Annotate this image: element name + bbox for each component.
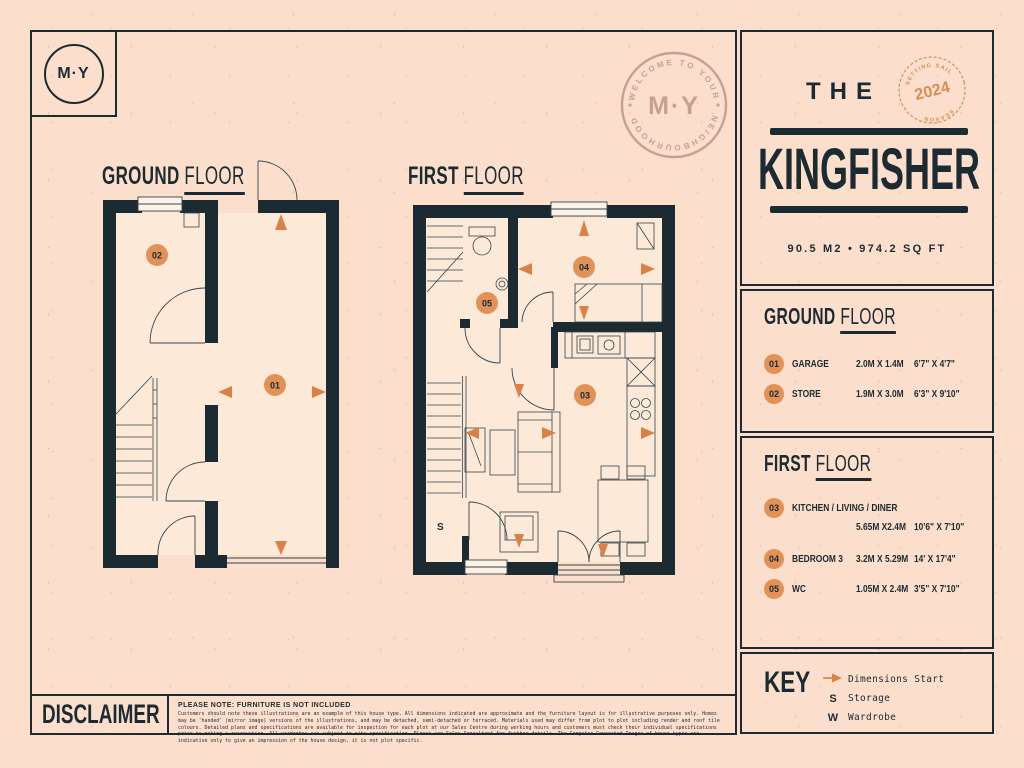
ground-heading-strong: GROUND: [764, 303, 836, 329]
room-row-garage: 01 GARAGE 2.0M X 1.4M 6'7" X 4'7": [764, 349, 978, 379]
house-area: 90.5 M2 • 974.2 SQ FT: [742, 243, 992, 255]
disclaimer-note: PLEASE NOTE: FURNITURE IS NOT INCLUDED: [178, 702, 351, 709]
room-badge-store: 02: [146, 244, 168, 266]
room-metric: 1.9M X 3.0M: [856, 388, 904, 400]
first-label-strong: FIRST: [408, 162, 459, 190]
room-row-kitchen: 03 KITCHEN / LIVING / DINER 5.65M X2.4M …: [764, 498, 978, 536]
svg-text:03: 03: [580, 391, 590, 401]
key-heading: KEY: [764, 666, 810, 700]
first-window-top: [551, 202, 607, 216]
first-label-light: FLOOR: [464, 162, 524, 195]
svg-text:01: 01: [270, 381, 280, 391]
svg-text:05: 05: [482, 299, 492, 309]
room-number-badge: 05: [764, 579, 784, 599]
room-name: BEDROOM 3: [792, 553, 843, 565]
welcome-badge: WELCOME TO YOUR NEIGHBOURHOOD M·Y: [618, 49, 730, 161]
ground-floor-plan: 02 01: [100, 156, 342, 574]
logo-box: M·Y: [30, 30, 117, 117]
welcome-badge-center: M·Y: [648, 92, 700, 120]
first-heading-strong: FIRST: [764, 450, 811, 476]
room-number-badge: 01: [764, 354, 784, 374]
wardrobe-symbol: W: [818, 712, 848, 724]
room-imperial: 14' X 17'4": [914, 553, 956, 565]
first-panel-heading: FIRSTFLOOR: [764, 450, 922, 477]
room-name: WC: [792, 583, 806, 595]
ground-panel-heading: GROUNDFLOOR: [764, 303, 958, 330]
key-label: Wardrobe: [848, 712, 896, 723]
room-badge-wc: 05: [476, 292, 498, 314]
svg-text:04: 04: [579, 263, 589, 273]
room-imperial: 3'5" X 7'10": [914, 583, 960, 595]
ground-floor-panel: GROUNDFLOOR 01 GARAGE 2.0M X 1.4M 6'7" X…: [740, 289, 994, 433]
stamp-year: 2024: [913, 79, 952, 104]
room-row-store: 02 STORE 1.9M X 3.0M 6'3" X 9'10": [764, 379, 978, 409]
ground-heading-light: FLOOR: [840, 303, 896, 334]
title-rule-top: [770, 128, 968, 135]
key-label: Storage: [848, 693, 890, 704]
room-row-bedroom: 04 BEDROOM 3 3.2M X 5.29M 14' X 17'4": [764, 544, 978, 574]
house-name-text: KINGFISHER: [758, 137, 980, 200]
room-imperial: 6'7" X 4'7": [914, 358, 955, 370]
room-imperial: 10'6" X 7'10": [914, 521, 964, 533]
room-metric: 5.65M X2.4M: [856, 521, 906, 533]
room-badge-bedroom: 04: [573, 256, 595, 278]
garage-door: [227, 558, 326, 563]
room-name: STORE: [792, 388, 821, 400]
key-label: Dimensions Start: [848, 674, 944, 685]
room-name: KITCHEN / LIVING / DINER: [792, 502, 897, 514]
ground-window: [138, 197, 182, 211]
first-floor-plan: S 05 04 03: [405, 196, 685, 588]
first-floor-plan-label: FIRSTFLOOR: [408, 162, 578, 191]
disclaimer-panel: DISCLAIMER PLEASE NOTE: FURNITURE IS NOT…: [30, 694, 737, 735]
year-stamp: SETTING SAIL SEASON 2024: [886, 44, 978, 136]
key-panel: KEY Dimensions Start S Storage W Wardrob…: [740, 652, 994, 734]
key-item-dimensions: Dimensions Start: [818, 670, 944, 689]
disclaimer-body: Customers should note these illustration…: [178, 711, 727, 745]
disclaimer-divider: [167, 696, 169, 733]
room-number-badge: 04: [764, 549, 784, 569]
dimensions-start-arrow-icon: [823, 673, 843, 683]
room-imperial: 6'3" X 9'10": [914, 388, 960, 400]
room-name: GARAGE: [792, 358, 829, 370]
floorplan-brochure-page: { "logo": { "text": "M·Y" }, "welcome_ba…: [0, 0, 1024, 768]
brand-logo-text: M·Y: [57, 65, 89, 83]
ground-entrance-door: [258, 161, 297, 200]
disclaimer-heading: DISCLAIMER: [42, 699, 160, 730]
key-item-wardrobe: W Wardrobe: [818, 708, 944, 727]
room-number-badge: 03: [764, 498, 784, 518]
first-window-bottom: [465, 560, 507, 574]
storage-symbol: S: [818, 693, 848, 705]
room-row-wc: 05 WC 1.05M X 2.4M 3'5" X 7'10": [764, 574, 978, 604]
room-metric: 3.2M X 5.29M: [856, 553, 908, 565]
brand-logo: M·Y: [44, 44, 104, 104]
title-panel: THE SETTING SAIL SEASON 2024 KINGFISHER …: [740, 30, 994, 286]
room-metric: 2.0M X 1.4M: [856, 358, 904, 370]
room-badge-kitchen: 03: [574, 384, 596, 406]
svg-text:02: 02: [152, 251, 162, 261]
room-metric: 1.05M X 2.4M: [856, 583, 908, 595]
room-badge-garage: 01: [264, 374, 286, 396]
first-floor-panel: FIRSTFLOOR 03 KITCHEN / LIVING / DINER 5…: [740, 436, 994, 649]
room-number-badge: 02: [764, 384, 784, 404]
first-heading-light: FLOOR: [816, 450, 872, 481]
title-rule-bottom: [770, 206, 968, 213]
house-name: KINGFISHER: [754, 136, 984, 200]
key-item-storage: S Storage: [818, 689, 944, 708]
storage-letter: S: [437, 522, 444, 533]
